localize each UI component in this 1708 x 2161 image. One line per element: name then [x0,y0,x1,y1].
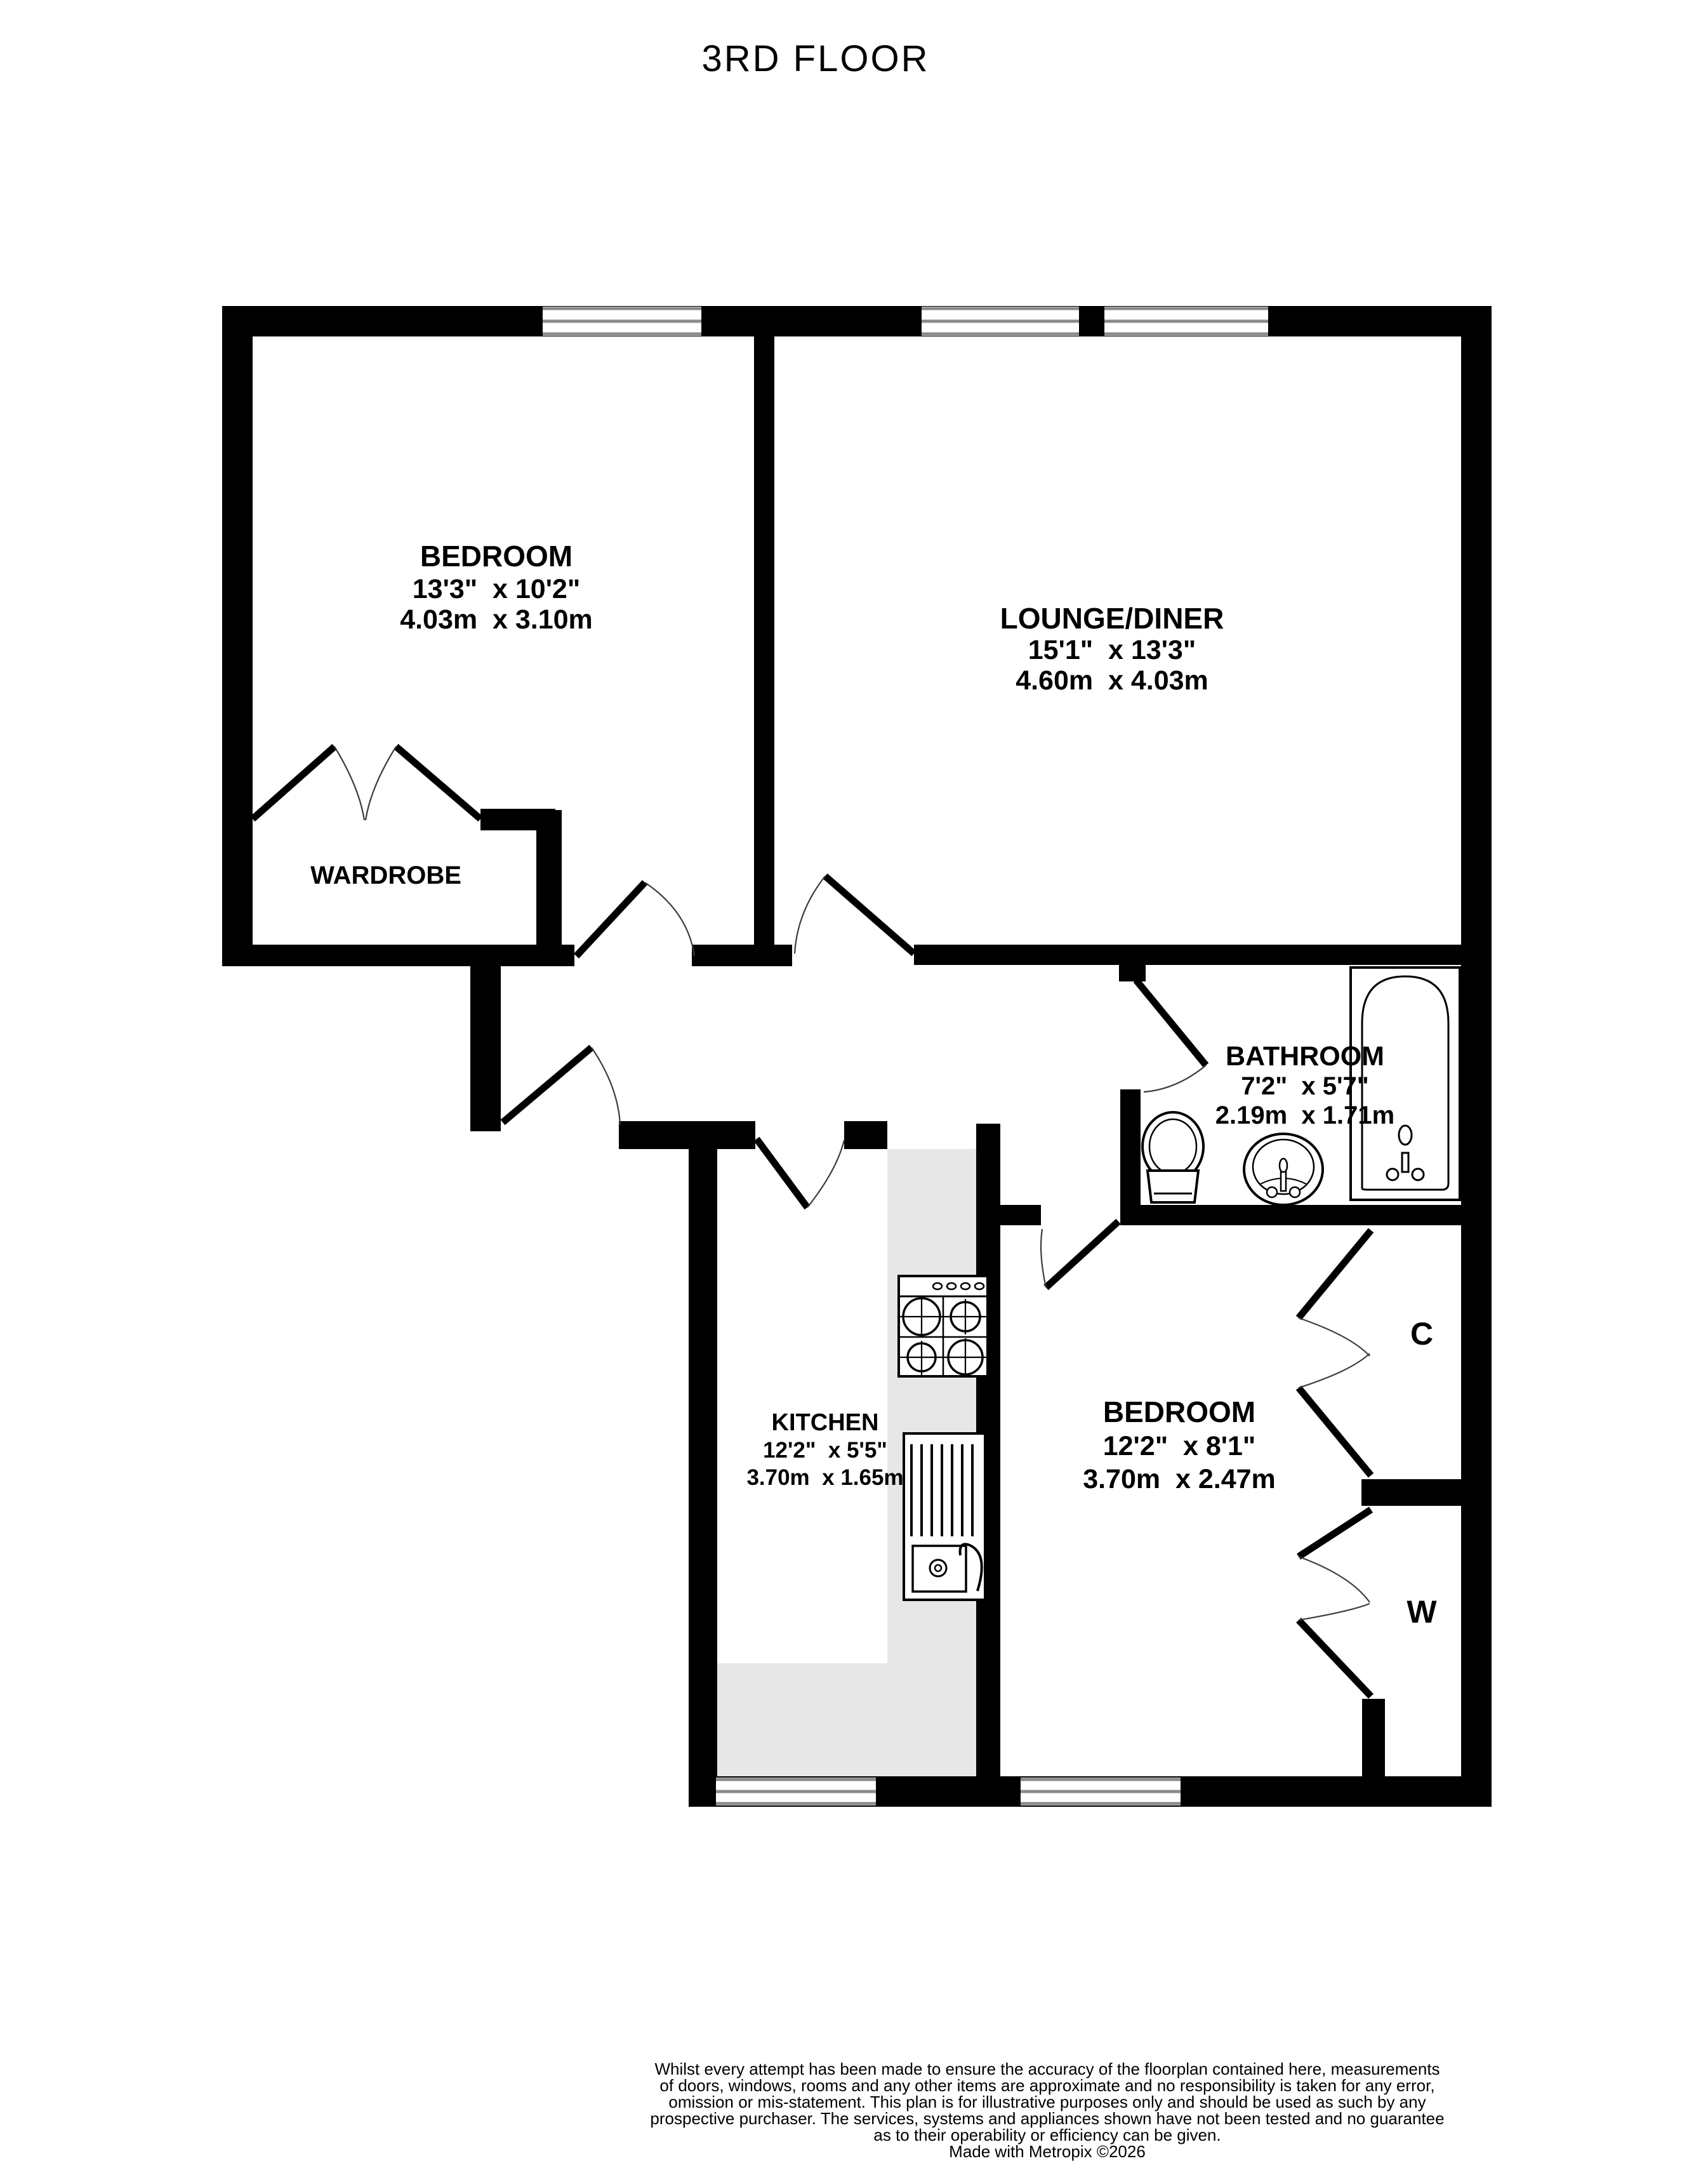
sink-icon [1244,1134,1323,1205]
room-size-metric: 4.03m x 3.10m [400,604,593,635]
wall-kitchen-left [689,1149,717,1776]
room-size-metric: 3.70m x 1.65m [746,1465,903,1490]
window-lounge-2 [1104,307,1268,336]
wall-bathroom-left [1120,1089,1141,1225]
label-lounge: LOUNGE/DINER 15'1" x 13'3" 4.60m x 4.03m [1000,602,1224,696]
wall-top [222,306,1492,336]
stove-knob [947,1283,956,1289]
label-closet-c: C [1410,1316,1433,1352]
wall-right [1461,306,1492,1807]
bathtub-tap-stem [1402,1153,1408,1172]
label-bathroom: BATHROOM 7'2" x 5'7" 2.19m x 1.71m [1215,1041,1394,1129]
stove-knob [933,1283,942,1289]
kitchen-sink-icon [904,1433,985,1600]
kitchen-sink-drainer [911,1444,972,1536]
sink-tap-left [1267,1187,1277,1197]
label-bedroom1: BEDROOM 13'3" x 10'2" 4.03m x 3.10m [400,540,593,635]
toilet-cistern [1148,1171,1198,1202]
wall-bathroom-door-stub [1119,965,1146,981]
wall-bedroom1-lounge-divider [754,336,774,945]
wall-closet-divider [1361,1479,1461,1506]
room-name: KITCHEN [772,1409,879,1436]
room-size-imperial: 12'2" x 8'1" [1103,1431,1256,1461]
wall-bathroom-bottom [1120,1205,1461,1225]
window-lounge-1 [922,307,1079,336]
stove-knob [961,1283,970,1289]
room-name: WARDROBE [310,861,461,889]
floorplan-page: 3RD FLOOR [0,0,1708,2161]
wall-kitchen-top-jamb [844,1121,887,1149]
room-name: BEDROOM [1103,1395,1255,1428]
wall-lounge-bottom [914,945,1461,965]
room-name: BATHROOM [1226,1041,1384,1072]
wall-bedroom2-door-jamb [1000,1205,1041,1225]
toilet-icon [1142,1112,1203,1202]
window-kitchen [716,1778,876,1805]
kitchen-sink-drain-inner [935,1565,941,1571]
room-size-metric: 3.70m x 2.47m [1083,1464,1276,1494]
floorplan-drawing: 3RD FLOOR [0,0,1708,2161]
sink-tap-right [1290,1187,1300,1197]
wall-hall-left [470,966,501,1131]
sink-tap-stem [1281,1172,1286,1191]
room-name: LOUNGE/DINER [1000,602,1224,635]
kitchen-fixtures [899,1276,988,1600]
room-size-metric: 4.60m x 4.03m [1016,665,1208,696]
room-size-imperial: 15'1" x 13'3" [1028,635,1196,665]
sink-tap-knob [1280,1159,1287,1173]
stove-knob [975,1283,984,1289]
wall-bedroom1-bottom [222,945,574,966]
window-bedroom1 [543,307,701,336]
wall-kitchen-top-west [619,1121,755,1149]
stove-icon [899,1276,988,1376]
room-name: BEDROOM [420,540,573,573]
room-size-imperial: 12'2" x 5'5" [763,1438,887,1463]
made-with-credit: Made with Metropix ©2026 [949,2142,1146,2161]
label-bedroom2: BEDROOM 12'2" x 8'1" 3.70m x 2.47m [1083,1395,1276,1494]
label-closet-w: W [1407,1594,1437,1630]
room-size-metric: 2.19m x 1.71m [1215,1101,1394,1129]
bathtub-tap-left [1387,1169,1398,1180]
window-bedroom2 [1021,1778,1181,1805]
wall-left [222,306,253,966]
wall-wardrobe-stub [480,809,555,830]
wall-wardrobe-right [536,810,562,966]
bathtub-tap-right [1412,1169,1424,1180]
wall-closet-w-stub [1362,1699,1385,1776]
wall-hall-sill [692,945,792,966]
page-title: 3RD FLOOR [702,38,930,79]
room-size-imperial: 7'2" x 5'7" [1241,1072,1369,1100]
room-size-imperial: 13'3" x 10'2" [413,574,580,604]
label-wardrobe: WARDROBE [310,861,461,889]
